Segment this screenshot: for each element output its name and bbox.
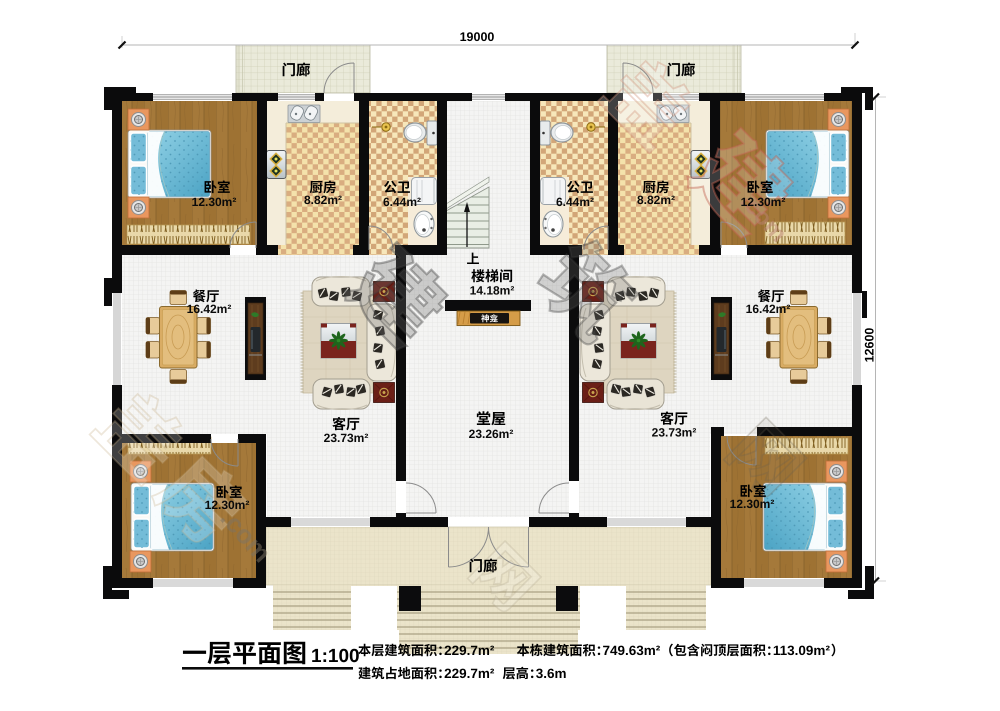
svg-text:14.18m²: 14.18m² bbox=[470, 284, 515, 298]
svg-text:12.30m²: 12.30m² bbox=[741, 195, 786, 209]
svg-text:229.7m²: 229.7m² bbox=[444, 643, 495, 658]
svg-text:23.73m²: 23.73m² bbox=[652, 426, 697, 440]
svg-text:12600: 12600 bbox=[863, 328, 877, 363]
svg-text:12.30m²: 12.30m² bbox=[730, 497, 775, 511]
svg-text:113.09m²: 113.09m² bbox=[773, 643, 831, 658]
svg-text:8.82m²: 8.82m² bbox=[637, 193, 675, 207]
svg-text:6.44m²: 6.44m² bbox=[556, 195, 594, 209]
svg-text:12.30m²: 12.30m² bbox=[205, 498, 250, 512]
svg-text:6.44m²: 6.44m² bbox=[383, 195, 421, 209]
svg-text:19000: 19000 bbox=[460, 30, 495, 44]
svg-text:229.7m²: 229.7m² bbox=[444, 666, 495, 681]
svg-text:1:100: 1:100 bbox=[311, 646, 360, 667]
svg-text:23.73m²: 23.73m² bbox=[324, 431, 369, 445]
svg-text:8.82m²: 8.82m² bbox=[304, 193, 342, 207]
svg-text:16.42m²: 16.42m² bbox=[746, 302, 791, 316]
svg-text:23.26m²: 23.26m² bbox=[469, 427, 514, 441]
svg-text:16.42m²: 16.42m² bbox=[187, 302, 232, 316]
svg-text:749.63m²: 749.63m² bbox=[603, 643, 661, 658]
svg-text:12.30m²: 12.30m² bbox=[192, 195, 237, 209]
svg-text:3.6m: 3.6m bbox=[536, 666, 567, 681]
